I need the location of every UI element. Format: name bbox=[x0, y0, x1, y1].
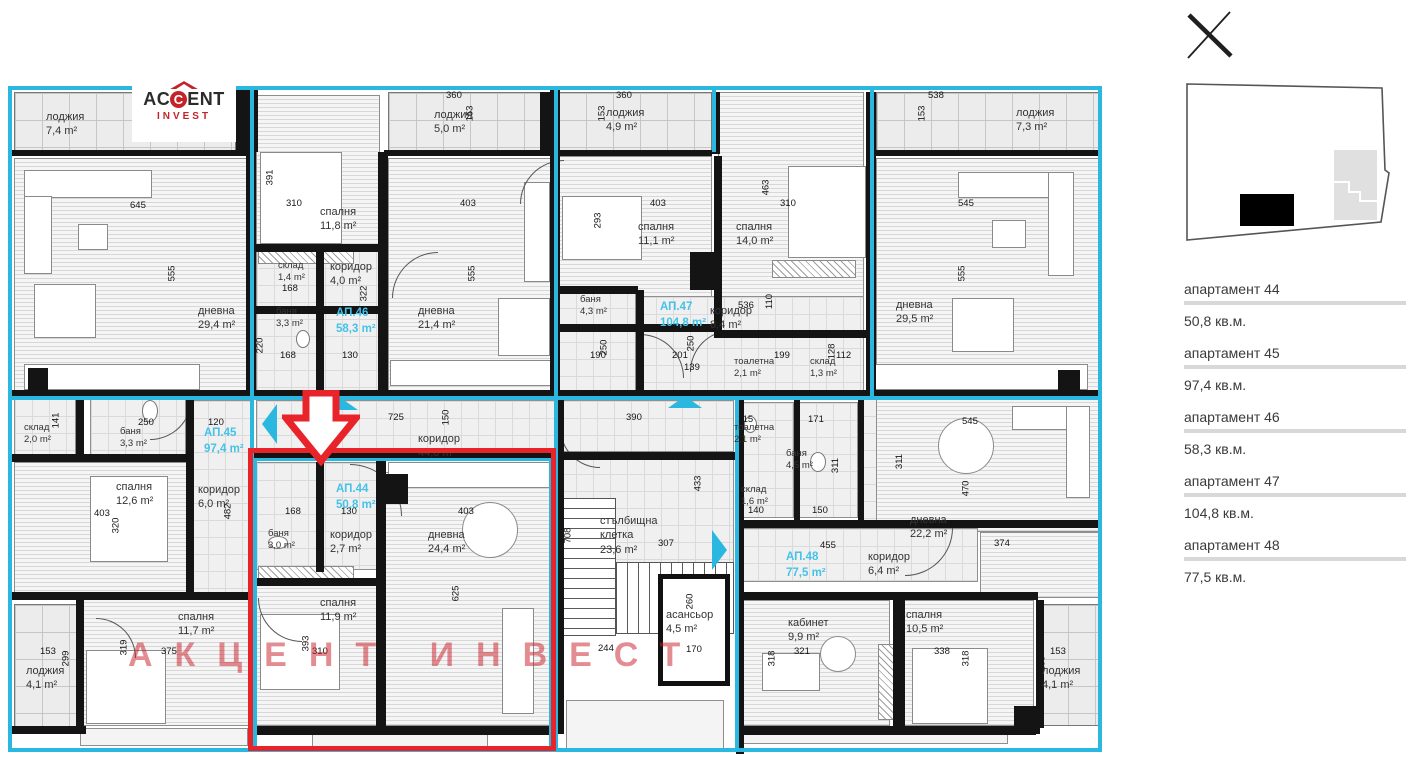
wall bbox=[8, 726, 86, 734]
room-label: лоджия7,3 m² bbox=[1016, 106, 1054, 135]
dimension-label: 307 bbox=[658, 538, 674, 549]
dimension-label: 120 bbox=[208, 417, 224, 428]
wall bbox=[858, 398, 864, 528]
dimension-label: 168 bbox=[282, 283, 298, 294]
room-label: склад1,4 m² bbox=[278, 260, 305, 285]
dimension-label: 112 bbox=[836, 350, 851, 361]
wall bbox=[76, 596, 84, 730]
dimension-label: 153 bbox=[464, 106, 475, 122]
furniture bbox=[1066, 406, 1090, 498]
dimension-label: 320 bbox=[110, 518, 121, 534]
minimap-other-section bbox=[1334, 150, 1377, 220]
highlight-arrow-icon bbox=[282, 390, 360, 466]
minimap-current-entrance bbox=[1240, 194, 1294, 226]
dimension-label: 299 bbox=[1036, 656, 1047, 672]
dimension-label: 250 bbox=[598, 340, 609, 356]
dimension-label: 360 bbox=[616, 90, 632, 101]
furniture bbox=[1048, 172, 1074, 276]
entrance-marker-icon bbox=[668, 396, 702, 408]
furniture bbox=[78, 224, 108, 250]
furniture bbox=[912, 648, 988, 724]
wall bbox=[893, 598, 905, 728]
room-label: лоджия4,1 m² bbox=[26, 664, 64, 693]
apartment-list: апартамент 4450,8 кв.м.апартамент 4597,4… bbox=[1184, 281, 1406, 601]
dimension-label: 403 bbox=[460, 198, 476, 209]
entrance-marker-icon bbox=[712, 530, 727, 570]
dimension-label: 545 bbox=[958, 198, 974, 209]
apartment-title[interactable]: апартамент 48 bbox=[1184, 537, 1406, 553]
room-label: баня4,5 m² bbox=[786, 448, 813, 473]
dimension-label: 390 bbox=[626, 412, 642, 423]
furniture bbox=[868, 364, 1088, 390]
dimension-label: 455 bbox=[820, 540, 836, 551]
dimension-label: 545 bbox=[962, 416, 978, 427]
room-label: баня3,3 m² bbox=[120, 426, 147, 451]
wall bbox=[8, 592, 250, 600]
apartment-area: 77,5 кв.м. bbox=[1184, 569, 1406, 585]
apartment-boundary bbox=[712, 86, 716, 152]
wall bbox=[236, 88, 258, 152]
dimension-label: 708 bbox=[562, 528, 573, 544]
dimension-label: 153 bbox=[1050, 646, 1066, 657]
divider-bar bbox=[1184, 429, 1406, 433]
divider-bar bbox=[1184, 557, 1406, 561]
dimension-label: 470 bbox=[960, 481, 971, 497]
dimension-label: 153 bbox=[596, 106, 607, 122]
room-label: лоджия4,9 m² bbox=[606, 106, 644, 135]
apartment-boundary bbox=[8, 86, 12, 752]
room-label: лоджия4,1 m² bbox=[1042, 664, 1080, 693]
wall bbox=[28, 368, 48, 395]
dimension-label: 168 bbox=[280, 350, 296, 361]
dimension-label: 141 bbox=[50, 413, 61, 429]
dimension-label: 725 bbox=[388, 412, 404, 423]
wall bbox=[186, 398, 194, 594]
dimension-label: 199 bbox=[774, 350, 790, 361]
logo-name: ACCENT bbox=[132, 89, 236, 109]
room-label: спалня14,0 m² bbox=[736, 220, 773, 249]
wall bbox=[870, 150, 1102, 156]
apartment-area: 58,3 кв.м. bbox=[1184, 441, 1406, 457]
dimension-label: 260 bbox=[684, 594, 695, 610]
room-label: склад1,3 m² bbox=[810, 356, 837, 381]
dimension-label: 433 bbox=[692, 476, 703, 492]
divider-bar bbox=[1184, 365, 1406, 369]
room-label: спалня10,5 m² bbox=[906, 608, 943, 637]
apartment-area: 97,4 кв.м. bbox=[1184, 377, 1406, 393]
room-label: дневна29,4 m² bbox=[198, 304, 235, 333]
dimension-label: 250 bbox=[138, 417, 154, 428]
dimension-label: 463 bbox=[760, 180, 771, 196]
room-label: спалня11,1 m² bbox=[638, 220, 674, 249]
furniture bbox=[992, 220, 1026, 248]
room-label: коридор6,4 m² bbox=[868, 550, 910, 579]
logo-roof-icon bbox=[170, 81, 198, 89]
dimension-label: 555 bbox=[166, 266, 177, 282]
room-label: баня4,3 m² bbox=[580, 294, 607, 319]
room-label: склад2,0 m² bbox=[24, 422, 51, 447]
dimension-label: 645 bbox=[130, 200, 146, 211]
dimension-label: 555 bbox=[956, 266, 967, 282]
dimension-label: 403 bbox=[94, 508, 110, 519]
apartment-list-item[interactable]: апартамент 4877,5 кв.м. bbox=[1184, 537, 1406, 585]
apartment-label-45[interactable]: АП.4597,4 m² bbox=[204, 426, 244, 457]
room-label: спалня11,8 m² bbox=[320, 205, 356, 234]
apartment-title[interactable]: апартамент 45 bbox=[1184, 345, 1406, 361]
dimension-label: 310 bbox=[780, 198, 796, 209]
dimension-label: 538 bbox=[928, 90, 944, 101]
wall bbox=[690, 252, 718, 290]
apartment-label-46[interactable]: АП.4658,3 m² bbox=[336, 306, 376, 337]
furniture bbox=[24, 196, 52, 274]
wall bbox=[76, 398, 84, 458]
room-label: кабинет9,9 m² bbox=[788, 616, 828, 645]
apartment-title[interactable]: апартамент 46 bbox=[1184, 409, 1406, 425]
room-floor bbox=[80, 728, 248, 746]
room-label: дневна21,4 m² bbox=[418, 304, 455, 333]
dimension-label: 153 bbox=[40, 646, 56, 657]
furniture bbox=[952, 298, 1014, 352]
room-label: спалня12,6 m² bbox=[116, 480, 153, 509]
apartment-title[interactable]: апартамент 47 bbox=[1184, 473, 1406, 489]
logo-c-badge: C bbox=[170, 91, 187, 108]
apartment-label-48[interactable]: АП.4877,5 m² bbox=[786, 550, 826, 581]
dimension-label: 318 bbox=[960, 651, 971, 667]
dimension-label: 299 bbox=[60, 651, 71, 667]
dimension-label: 140 bbox=[748, 505, 764, 516]
room-label: дневна29,5 m² bbox=[896, 298, 933, 327]
dimension-label: 130 bbox=[342, 350, 358, 361]
dimension-label: 391 bbox=[264, 170, 275, 186]
wall bbox=[558, 286, 638, 294]
room-floor bbox=[566, 700, 724, 750]
wall bbox=[740, 592, 1038, 600]
dimension-label: 250 bbox=[685, 336, 696, 352]
room-label: спалня11,7 m² bbox=[178, 610, 214, 639]
room-label: тоалетна2,1 m² bbox=[734, 422, 774, 447]
dimension-label: 321 bbox=[794, 646, 810, 657]
room-label: коридор6,0 m² bbox=[198, 483, 240, 512]
dimension-label: 171 bbox=[808, 414, 824, 425]
dimension-label: 322 bbox=[358, 286, 369, 302]
dimension-label: 536 bbox=[738, 300, 754, 311]
room-label: стълбищна клетка23,6 m² bbox=[600, 514, 678, 557]
close-icon[interactable] bbox=[1184, 6, 1238, 60]
dimension-label: 153 bbox=[916, 106, 927, 122]
wall bbox=[1014, 706, 1040, 734]
wall bbox=[378, 152, 388, 392]
apartment-boundary bbox=[870, 86, 874, 400]
furniture bbox=[390, 360, 552, 386]
room-label: дневна22,2 m² bbox=[910, 513, 947, 542]
dimension-label: 311 bbox=[830, 458, 841, 473]
page: лоджия7,4 m²дневна29,4 m²спалня11,8 m²ло… bbox=[0, 0, 1408, 764]
dimension-label: 220 bbox=[254, 338, 265, 354]
wall bbox=[384, 150, 554, 156]
room-label: коридор4,0 m² bbox=[330, 260, 372, 289]
highlight-rectangle bbox=[248, 448, 556, 751]
wall bbox=[1058, 370, 1080, 395]
wall bbox=[8, 150, 252, 156]
wall bbox=[8, 454, 188, 462]
wall bbox=[556, 452, 738, 460]
room-label: лоджия7,4 m² bbox=[46, 110, 84, 139]
apartment-label-47[interactable]: АП.47104,8 m² bbox=[660, 300, 706, 331]
dimension-label: 115 bbox=[738, 414, 753, 425]
wall bbox=[256, 244, 382, 252]
divider-bar bbox=[1184, 493, 1406, 497]
dimension-label: 555 bbox=[466, 266, 477, 282]
dimension-label: 150 bbox=[812, 505, 828, 516]
wall bbox=[736, 726, 1036, 735]
dimension-label: 318 bbox=[766, 651, 777, 667]
dimension-label: 139 bbox=[684, 362, 700, 373]
apartment-list-item[interactable]: апартамент 47104,8 кв.м. bbox=[1184, 473, 1406, 521]
apartment-area: 104,8 кв.м. bbox=[1184, 505, 1406, 521]
dimension-label: 201 bbox=[672, 350, 688, 361]
room-floor bbox=[876, 92, 1102, 154]
room-label: асансьор4,5 m² bbox=[666, 608, 713, 637]
wall bbox=[316, 252, 324, 392]
apartment-boundary bbox=[8, 396, 1102, 400]
furniture bbox=[24, 170, 152, 198]
dimension-label: 110 bbox=[764, 294, 775, 309]
apartment-boundary bbox=[735, 396, 739, 752]
dimension-label: 360 bbox=[446, 90, 462, 101]
room-label: баня3,3 m² bbox=[276, 306, 303, 331]
furniture bbox=[34, 284, 96, 338]
dimension-label: 482 bbox=[222, 504, 233, 520]
apartment-list-item[interactable]: апартамент 4658,3 кв.м. bbox=[1184, 409, 1406, 457]
dimension-label: 311 bbox=[894, 454, 905, 469]
apartment-area: 50,8 кв.м. bbox=[1184, 313, 1406, 329]
dimension-label: 310 bbox=[286, 198, 302, 209]
dimension-label: 338 bbox=[934, 646, 950, 657]
furniture bbox=[24, 364, 200, 390]
furniture bbox=[498, 298, 550, 356]
dimension-label: 293 bbox=[592, 213, 603, 229]
apartment-list-item[interactable]: апартамент 4450,8 кв.м. bbox=[1184, 281, 1406, 329]
site-plan-minimap bbox=[1184, 70, 1408, 250]
wall bbox=[556, 150, 712, 156]
apartment-list-item[interactable]: апартамент 4597,4 кв.м. bbox=[1184, 345, 1406, 393]
wall bbox=[636, 290, 644, 394]
dimension-label: 403 bbox=[650, 198, 666, 209]
room-label: тоалетна2,1 m² bbox=[734, 356, 774, 381]
apartment-title[interactable]: апартамент 44 bbox=[1184, 281, 1406, 297]
logo-subtitle: INVEST bbox=[132, 111, 236, 122]
furniture bbox=[772, 260, 856, 278]
furniture bbox=[788, 166, 866, 258]
bath-fixture bbox=[296, 330, 310, 348]
apartment-boundary bbox=[1098, 86, 1102, 752]
entrance-marker-icon bbox=[262, 404, 277, 444]
divider-bar bbox=[1184, 301, 1406, 305]
dimension-label: 374 bbox=[994, 538, 1010, 549]
accent-invest-logo: ACCENT INVEST bbox=[132, 80, 236, 142]
dimension-label: 150 bbox=[440, 410, 451, 426]
